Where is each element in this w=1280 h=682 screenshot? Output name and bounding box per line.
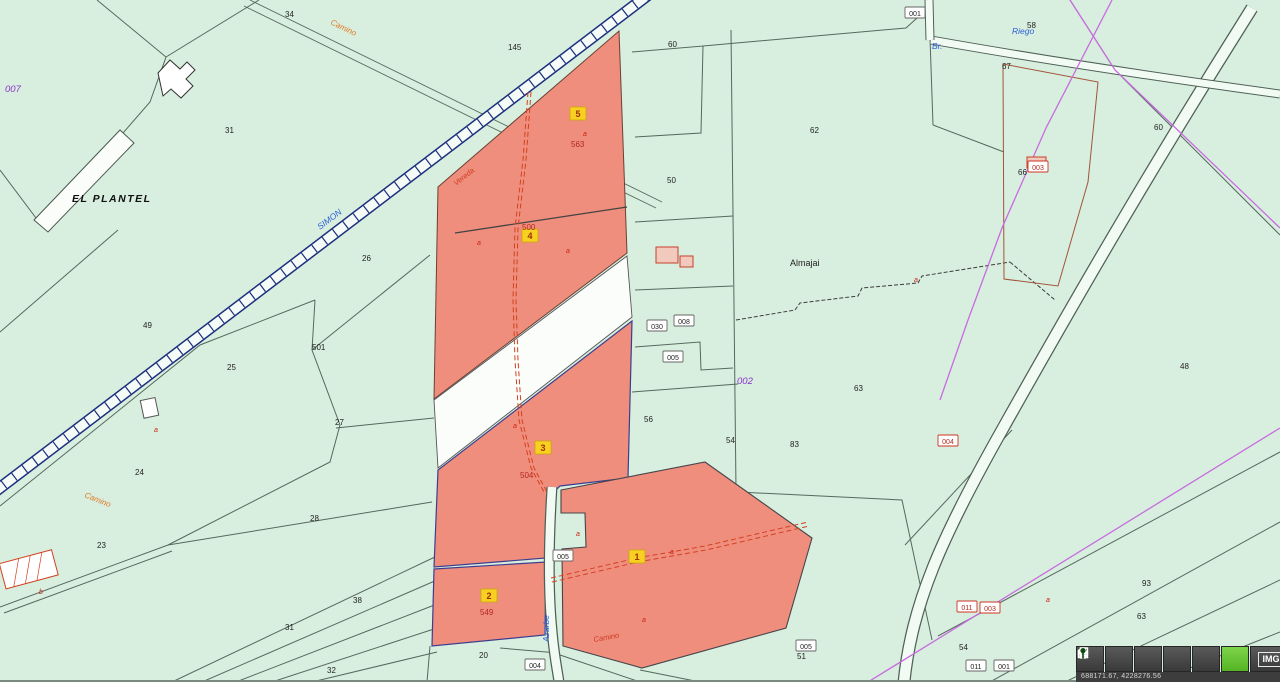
map-label: a — [566, 248, 570, 255]
map-label: a — [642, 617, 646, 624]
map-label: 58 — [1027, 21, 1036, 30]
parcel-badge-number: 3 — [540, 443, 545, 453]
building — [680, 256, 693, 267]
back-button[interactable] — [1163, 646, 1191, 672]
map-label: 54 — [726, 436, 735, 445]
building — [140, 398, 158, 419]
map-label: 501 — [312, 343, 326, 352]
copy-button[interactable] — [1134, 646, 1162, 672]
parcel-badge-number: 4 — [527, 231, 532, 241]
map-label: a — [477, 240, 481, 247]
map-toolbar: IMG — [1076, 646, 1280, 672]
map-label: 145 — [508, 43, 522, 52]
map-label: 38 — [353, 596, 362, 605]
map-label: 549 — [480, 608, 494, 617]
map-label: 563 — [571, 140, 585, 149]
map-label: 27 — [335, 418, 344, 427]
map-label: 49 — [143, 321, 152, 330]
zoom-button[interactable] — [1105, 646, 1133, 672]
map-canvas[interactable]: 001030008005005004005011001011003004003 … — [0, 0, 1280, 682]
map-label: a — [154, 427, 158, 434]
map-label: 007 — [5, 84, 22, 95]
chip-text: 001 — [909, 11, 921, 18]
map-label: 51 — [797, 652, 806, 661]
coordinate-status-bar: 688171.67, 4228276.56 — [1076, 672, 1280, 682]
chip-text: 030 — [651, 324, 663, 331]
chip-text: 004 — [529, 663, 541, 670]
map-label: 66 — [1018, 168, 1027, 177]
map-label: a — [576, 531, 580, 538]
map-label: a — [513, 423, 517, 430]
map-label: a — [1046, 597, 1050, 604]
map-label: b — [39, 589, 43, 596]
building — [656, 247, 678, 263]
map-label: 62 — [810, 126, 819, 135]
map-label: 31 — [285, 623, 294, 632]
map-label: Br. — [932, 41, 943, 51]
map-label: 31 — [225, 126, 234, 135]
parcel-badge-number: 5 — [575, 109, 580, 119]
chip-text: 001 — [998, 664, 1010, 671]
map-label: 002 — [737, 376, 754, 387]
map-label: 50 — [667, 176, 676, 185]
chip-text: 003 — [984, 606, 996, 613]
map-label: 500 — [522, 223, 536, 232]
chip-text: 008 — [678, 319, 690, 326]
map-label: 25 — [227, 363, 236, 372]
map-label: 20 — [479, 651, 488, 660]
chip-text: 003 — [1032, 165, 1044, 172]
map-label: EL PLANTEL — [72, 193, 152, 205]
map-viewer-window: 001030008005005004005011001011003004003 … — [0, 0, 1280, 682]
map-label: a — [583, 131, 587, 138]
locate-button[interactable] — [1221, 646, 1249, 672]
map-label: 60 — [668, 40, 677, 49]
chip-text: 005 — [667, 355, 679, 362]
img-button[interactable]: IMG — [1250, 646, 1280, 672]
parcel-badge-number: 1 — [634, 552, 639, 562]
map-label: 54 — [959, 643, 968, 652]
map-label: 83 — [790, 440, 799, 449]
img-button-label: IMG — [1258, 652, 1280, 667]
chip-text: 005 — [800, 644, 812, 651]
map-label: 504 — [520, 471, 534, 480]
map-label: 48 — [1180, 362, 1189, 371]
chip-text: 004 — [942, 439, 954, 446]
map-label: 23 — [97, 541, 106, 550]
map-label: Azarbe — [541, 615, 551, 643]
map-label: a — [670, 549, 674, 556]
map-label: 63 — [854, 384, 863, 393]
map-label: 67 — [1002, 62, 1011, 71]
chip-text: 011 — [970, 664, 981, 671]
map-label: 28 — [310, 514, 319, 523]
map-label: 26 — [362, 254, 371, 263]
chip-text: 005 — [557, 554, 569, 561]
chip-text: 011 — [961, 605, 972, 612]
parcel-badge-number: 2 — [486, 591, 491, 601]
map-label: 24 — [135, 468, 144, 477]
map-label: Almajai — [790, 258, 820, 268]
map-label: 93 — [1142, 579, 1151, 588]
parcel-2[interactable] — [432, 562, 546, 646]
map-label: 60 — [1154, 123, 1163, 132]
map-label: a — [914, 277, 918, 284]
map-label: 34 — [285, 10, 294, 19]
map-label: 32 — [327, 666, 336, 675]
map-label: 56 — [644, 415, 653, 424]
print-button[interactable] — [1192, 646, 1220, 672]
map-label: 63 — [1137, 612, 1146, 621]
